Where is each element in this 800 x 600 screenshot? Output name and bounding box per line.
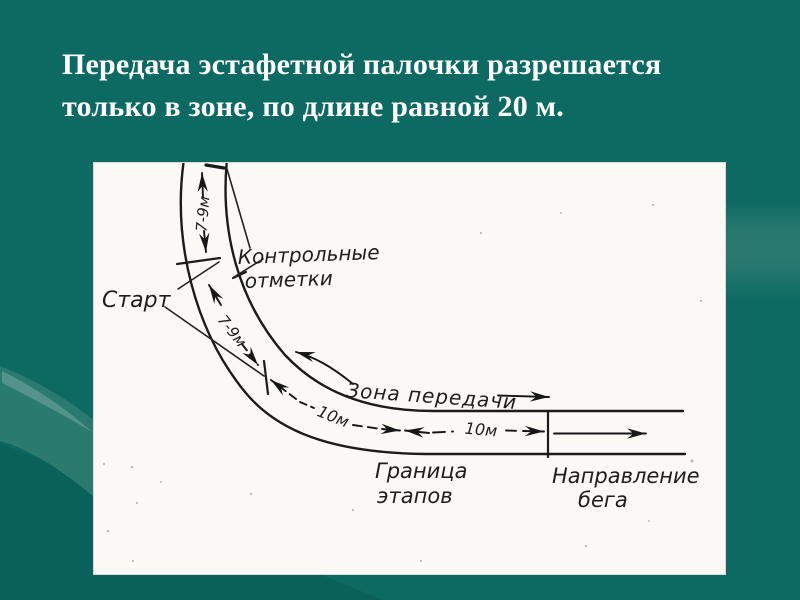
leader-start [178,262,219,289]
dim-10a-dash2 [353,425,381,429]
boundary-label-line1: Граница [375,459,467,483]
direction-label-line1: Направление [552,464,700,488]
start-label: Старт [102,288,172,313]
dim-7-9-top-label: 7-9м [192,195,213,232]
leader-start-to-zone [165,307,264,376]
dim-7-9-curve-arrow-up [209,285,221,305]
direction-label-line2: бега [578,488,628,512]
zone-label: Зона передачи [346,378,518,414]
presentation-slide: { "slide": { "background_color": "#0c6a6… [0,0,800,600]
figure-labels: Старт Контрольные отметки 7-9м 7-9м Зона… [102,195,700,512]
slide-title-line1: Передача эстафетной палочки разрешается [62,44,782,86]
control-marks-label-line1: Контрольные [237,240,380,269]
dim-10a-arrow-left [271,380,296,399]
dim-10b-arrow-left [405,431,429,434]
figure-paper: Старт Контрольные отметки 7-9м 7-9м Зона… [93,162,726,575]
dim-10b-dash [433,432,453,433]
boundary-label-line2: этапов [377,484,453,508]
start-line-tick [177,258,220,264]
dim-10a-dash [300,402,314,408]
dim-10b-dash2 [506,431,521,432]
top-control-mark-tick [206,165,224,168]
zone-curved-arrow [296,352,353,384]
control-marks-label-line2: отметки [244,266,333,293]
track-band [177,163,685,457]
slide-title-line2: только в зоне, по длине равной 20 м. [62,86,782,128]
dim-10-second-label: 10м [464,419,498,441]
dim-10a-arrow-right [382,429,400,431]
dim-7-9-top-arrow-down [204,231,206,252]
relay-zone-diagram: Старт Контрольные отметки 7-9м 7-9м Зона… [94,163,725,574]
zone-start-tick [264,361,268,394]
dim-7-9-top-arrow-up [202,173,203,197]
dim-10b-arrow-right [523,431,544,432]
slide-title: Передача эстафетной палочки разрешается … [62,44,782,128]
dim-10-first-label: 10м [315,402,352,432]
